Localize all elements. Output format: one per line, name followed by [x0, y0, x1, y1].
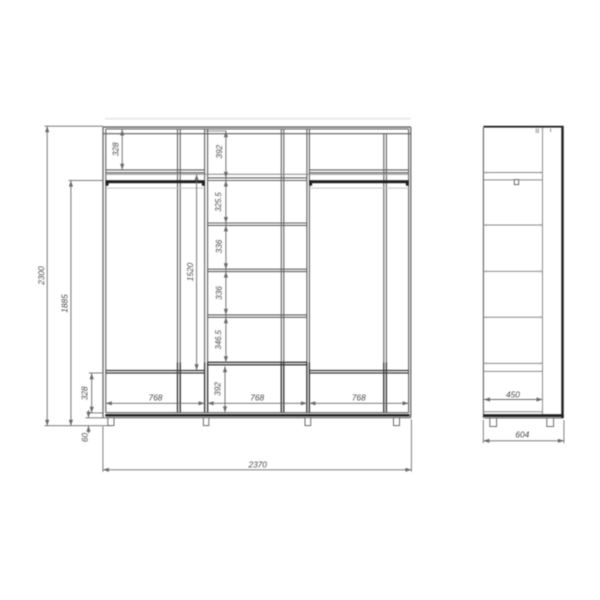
svg-text:604: 604 [515, 429, 529, 439]
svg-text:1520: 1520 [185, 262, 195, 281]
svg-text:336: 336 [214, 239, 224, 253]
svg-text:60: 60 [80, 433, 90, 443]
svg-text:392: 392 [212, 382, 222, 396]
svg-text:2370: 2370 [247, 459, 267, 469]
svg-text:346.5: 346.5 [214, 329, 223, 349]
svg-text:325.5: 325.5 [214, 192, 223, 212]
svg-text:768: 768 [250, 392, 264, 402]
svg-text:336: 336 [214, 286, 224, 300]
svg-text:450: 450 [506, 389, 520, 399]
svg-text:768: 768 [352, 392, 366, 402]
svg-text:392: 392 [214, 144, 224, 158]
svg-text:768: 768 [149, 392, 163, 402]
svg-text:328: 328 [80, 386, 90, 400]
svg-text:328: 328 [111, 142, 121, 156]
svg-text:2300: 2300 [36, 266, 46, 286]
svg-text:1885: 1885 [60, 294, 70, 313]
